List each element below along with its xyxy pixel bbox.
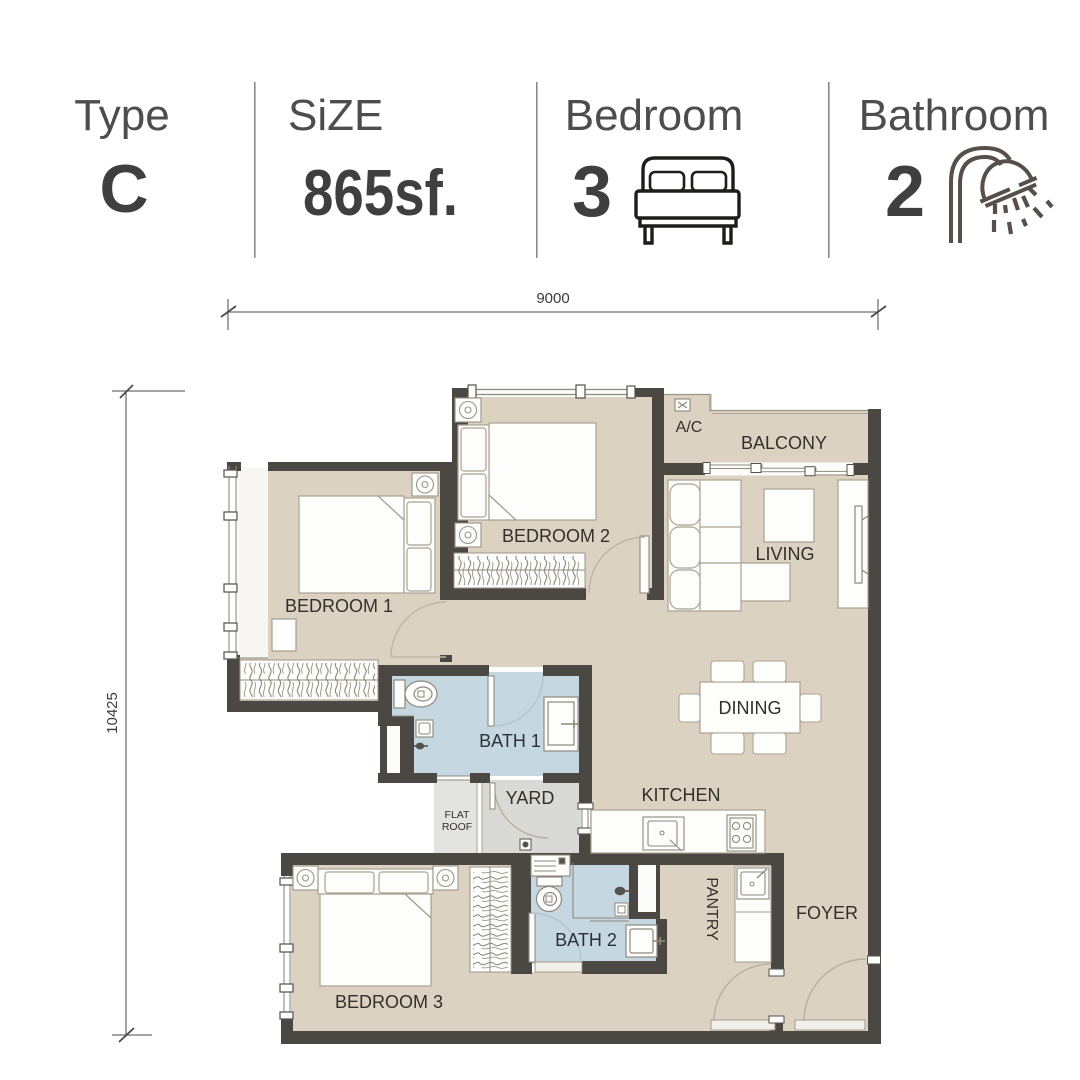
svg-text:BALCONY: BALCONY — [741, 433, 827, 453]
svg-text:A/C: A/C — [676, 419, 703, 436]
svg-text:Bathroom: Bathroom — [859, 91, 1050, 140]
svg-text:C: C — [99, 151, 148, 227]
svg-text:3: 3 — [572, 152, 612, 232]
svg-text:ROOF: ROOF — [442, 821, 472, 833]
svg-text:2: 2 — [885, 152, 925, 232]
svg-text:BATH 1: BATH 1 — [479, 731, 541, 751]
svg-text:YARD: YARD — [506, 788, 555, 808]
svg-text:DINING: DINING — [719, 698, 782, 718]
svg-text:9000: 9000 — [536, 290, 569, 307]
svg-text:PANTRY: PANTRY — [703, 877, 720, 941]
svg-text:Bedroom: Bedroom — [565, 91, 744, 140]
svg-text:LIVING: LIVING — [755, 544, 814, 564]
svg-text:10425: 10425 — [104, 692, 121, 734]
svg-text:FLAT: FLAT — [445, 809, 470, 821]
svg-text:KITCHEN: KITCHEN — [641, 785, 720, 805]
svg-text:BEDROOM 2: BEDROOM 2 — [502, 526, 610, 546]
svg-text:SiZE: SiZE — [288, 91, 383, 140]
svg-text:FOYER: FOYER — [796, 903, 858, 923]
svg-text:865sf.: 865sf. — [303, 156, 458, 229]
svg-text:Type: Type — [74, 91, 169, 140]
svg-text:BEDROOM 3: BEDROOM 3 — [335, 992, 443, 1012]
svg-text:BATH 2: BATH 2 — [555, 930, 617, 950]
svg-text:BEDROOM 1: BEDROOM 1 — [285, 596, 393, 616]
